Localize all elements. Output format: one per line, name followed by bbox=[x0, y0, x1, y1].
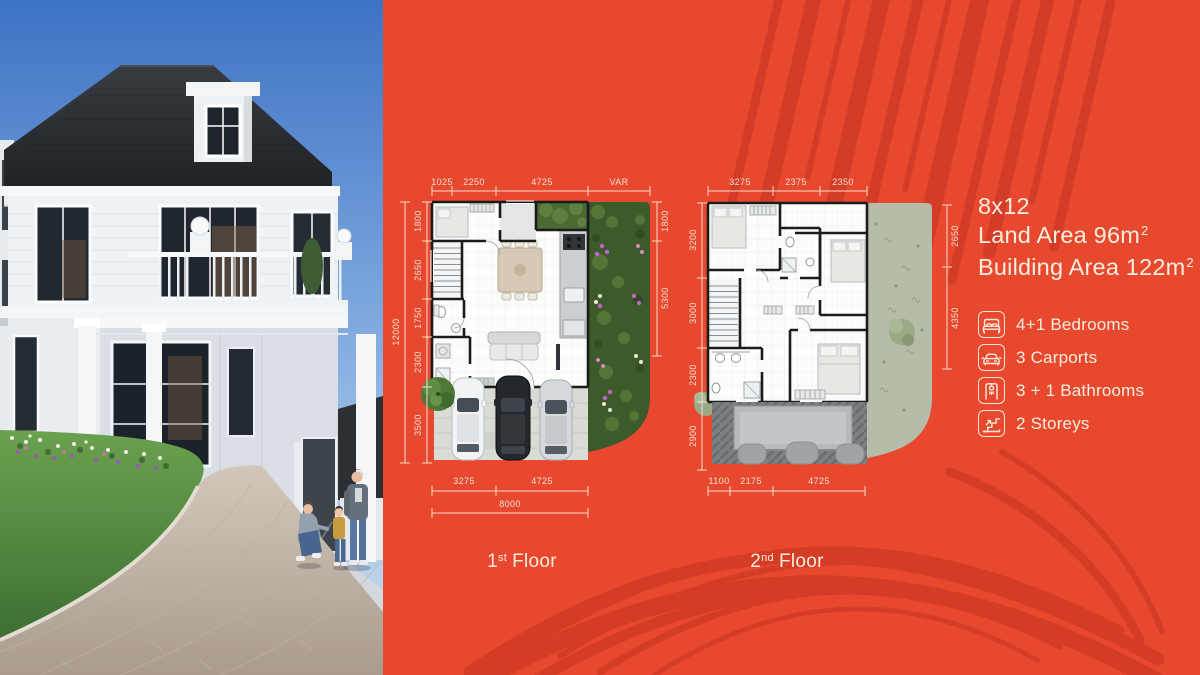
land-area: Land Area 96m2 bbox=[978, 221, 1194, 253]
dimension-label: 2300 bbox=[413, 351, 423, 373]
feature-carports: 3 Carports bbox=[978, 344, 1144, 371]
floor-number: 1 bbox=[487, 551, 498, 572]
floorplan-1 bbox=[421, 201, 650, 460]
superscript-2: 2 bbox=[1141, 223, 1148, 238]
dimension-label: 1800 bbox=[413, 210, 423, 232]
dimension-label: 2375 bbox=[785, 177, 807, 187]
brochure-page: 1025 2250 4725 VAR 12000 1800 2650 1750 … bbox=[0, 0, 1200, 675]
dimension-label: 2650 bbox=[950, 225, 960, 247]
dimension-label: 2250 bbox=[463, 177, 485, 187]
floor-word: Floor bbox=[512, 551, 557, 572]
floor-ordinal-suffix: st bbox=[498, 552, 507, 564]
dimension-label: 3275 bbox=[729, 177, 751, 187]
spec-block: 8x12 Land Area 96m2 Building Area 122m2 bbox=[978, 192, 1194, 285]
bed-icon bbox=[978, 311, 1005, 338]
first-floor-label: 1stFloor bbox=[487, 551, 557, 573]
feature-bathrooms: 3 + 1 Bathrooms bbox=[978, 377, 1144, 404]
feature-list: 4+1 Bedrooms 3 Carports bbox=[978, 311, 1144, 437]
dimension-label: 12000 bbox=[391, 318, 401, 345]
floorplan-2 bbox=[694, 203, 932, 464]
dimension-label: 2350 bbox=[832, 177, 854, 187]
feature-bedrooms: 4+1 Bedrooms bbox=[978, 311, 1144, 338]
dimension-label: 3275 bbox=[453, 476, 475, 486]
shower-icon bbox=[978, 377, 1005, 404]
plan1-tree bbox=[421, 377, 455, 411]
stairs-icon bbox=[978, 410, 1005, 437]
floor-word: Floor bbox=[779, 551, 824, 572]
dimension-label: 2900 bbox=[688, 425, 698, 447]
dimension-label: 3000 bbox=[688, 302, 698, 324]
dimension-label: 4725 bbox=[808, 476, 830, 486]
car-white bbox=[450, 378, 486, 460]
unit-size: 8x12 bbox=[978, 192, 1194, 221]
house-photo bbox=[0, 0, 383, 675]
dimension-label: 2300 bbox=[688, 364, 698, 386]
dimension-label: 4725 bbox=[531, 177, 553, 187]
dimension-label: 8000 bbox=[499, 499, 521, 509]
car-silver bbox=[538, 380, 574, 460]
feature-storeys: 2 Storeys bbox=[978, 410, 1144, 437]
dimension-label: 2650 bbox=[413, 259, 423, 281]
dimension-label: VAR bbox=[609, 177, 628, 187]
dimension-label: 1100 bbox=[709, 476, 730, 486]
dimension-label: 2175 bbox=[740, 476, 762, 486]
dimension-label: 1750 bbox=[413, 307, 423, 329]
dimension-label: 3500 bbox=[413, 414, 423, 436]
building-area: Building Area 122m2 bbox=[978, 253, 1194, 285]
dimension-label: 3200 bbox=[688, 229, 698, 251]
balcony-tree bbox=[301, 238, 323, 294]
plan1-cars bbox=[450, 376, 574, 460]
dimension-label: 5300 bbox=[660, 287, 670, 309]
second-floor-label: 2ndFloor bbox=[750, 551, 824, 573]
dimension-label: 4350 bbox=[950, 307, 960, 329]
feature-label: 4+1 Bedrooms bbox=[1016, 315, 1129, 335]
feature-label: 3 + 1 Bathrooms bbox=[1016, 381, 1144, 401]
feature-label: 2 Storeys bbox=[1016, 414, 1090, 434]
floor-ordinal-suffix: nd bbox=[761, 552, 774, 564]
dimension-label: 1800 bbox=[660, 210, 670, 232]
superscript-2: 2 bbox=[1186, 255, 1193, 270]
floor-number: 2 bbox=[750, 551, 761, 572]
plan2-roof bbox=[712, 402, 867, 464]
car-icon bbox=[978, 344, 1005, 371]
feature-label: 3 Carports bbox=[1016, 348, 1097, 368]
car-black bbox=[494, 376, 532, 460]
dimension-label: 4725 bbox=[531, 476, 553, 486]
dimension-label: 1025 bbox=[431, 177, 453, 187]
plan1-garden bbox=[588, 202, 650, 452]
